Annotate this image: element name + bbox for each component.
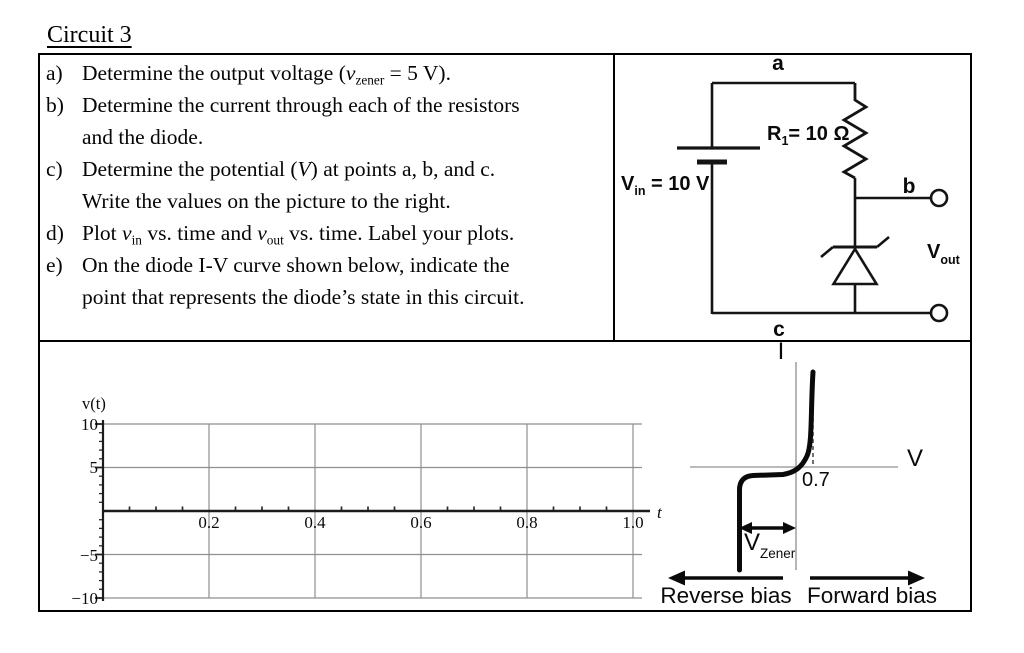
question-item: d)Plot vin vs. time and vout vs. time. L…: [46, 217, 621, 249]
question-text-segment: out: [267, 233, 284, 248]
question-text-segment: = 5 V).: [384, 61, 451, 85]
circuit-wires: [712, 83, 931, 314]
question-label: c): [46, 153, 82, 217]
y-tick-label: 5: [90, 458, 99, 477]
question-text-segment: On the diode I-V curve shown below, indi…: [82, 253, 510, 277]
question-text-segment: v: [122, 221, 132, 245]
question-text-segment: V: [298, 157, 311, 181]
question-item: a)Determine the output voltage (vzener =…: [46, 57, 621, 89]
forward-bias-label: Forward bias: [807, 583, 937, 608]
node-a-label: a: [772, 52, 784, 75]
question-text-segment: Write the values on the picture to the r…: [82, 189, 451, 213]
question-text-segment: ) at points a, b, and c.: [311, 157, 496, 181]
x-tick-label: 0.2: [198, 513, 219, 532]
current-axis-label: I: [778, 338, 785, 365]
question-item: e)On the diode I-V curve shown below, in…: [46, 249, 621, 313]
question-text-segment: and the diode.: [82, 125, 203, 149]
question-text-segment: v: [257, 221, 267, 245]
y-tick-label: −5: [80, 546, 98, 565]
voltage-axis-label: V: [907, 445, 923, 472]
x-tick-label: 1.0: [622, 513, 643, 532]
plot-grid: v(t) 10 5 −5 −10 0.2 0.4 0.6 0.8 1.0 t: [38, 342, 683, 612]
worksheet-page: Circuit 3 a)Determine the output voltage…: [0, 0, 1024, 653]
question-text: Determine the current through each of th…: [82, 89, 520, 153]
battery-icon: [677, 148, 760, 162]
x-tick-label: 0.6: [410, 513, 431, 532]
terminal-c: [931, 305, 947, 321]
question-text-segment: in: [132, 233, 142, 248]
source-label: Vin = 10 V: [621, 173, 710, 198]
question-text: Plot vin vs. time and vout vs. time. Lab…: [82, 217, 514, 249]
question-list: a)Determine the output voltage (vzener =…: [46, 57, 621, 313]
question-text-segment: Determine the output voltage (: [82, 61, 346, 85]
knee-value-label: 0.7: [802, 469, 830, 491]
question-text-segment: point that represents the diode’s state …: [82, 285, 524, 309]
question-label: d): [46, 217, 82, 249]
question-text: Determine the output voltage (vzener = 5…: [82, 57, 451, 89]
node-b-label: b: [903, 175, 916, 198]
question-text: Determine the potential (V) at points a,…: [82, 153, 495, 217]
question-text-segment: vs. time. Label your plots.: [284, 221, 515, 245]
question-text-segment: v: [346, 61, 356, 85]
x-tick-label: 0.8: [516, 513, 537, 532]
resistor-label: R1= 10 Ω: [767, 123, 849, 148]
x-tick-label: 0.4: [304, 513, 326, 532]
y-tick-label: 10: [81, 415, 98, 434]
question-text-segment: vs. time and: [142, 221, 257, 245]
question-text-segment: Determine the potential (: [82, 157, 298, 181]
y-tick-label: −10: [71, 589, 98, 608]
question-label: b): [46, 89, 82, 153]
vzener-label: VZener: [744, 529, 796, 561]
question-item: c)Determine the potential (V) at points …: [46, 153, 621, 217]
question-label: e): [46, 249, 82, 313]
vout-label: Vout: [927, 241, 961, 267]
question-text-segment: Plot: [82, 221, 122, 245]
page-title: Circuit 3: [47, 22, 132, 49]
circuit-diagram: a b c Vin = 10 V R1= 10 Ω Vout: [613, 53, 972, 341]
question-text-segment: zener: [355, 73, 384, 88]
plot-ylabel: v(t): [82, 394, 106, 413]
terminal-b: [931, 190, 947, 206]
question-label: a): [46, 57, 82, 89]
question-text-segment: Determine the current through each of th…: [82, 93, 520, 117]
question-text: On the diode I-V curve shown below, indi…: [82, 249, 524, 313]
diode-iv-figure: I V 0.7 VZener Reverse bias Forward bias: [660, 340, 972, 612]
reverse-bias-label: Reverse bias: [660, 583, 791, 608]
question-item: b)Determine the current through each of …: [46, 89, 621, 153]
